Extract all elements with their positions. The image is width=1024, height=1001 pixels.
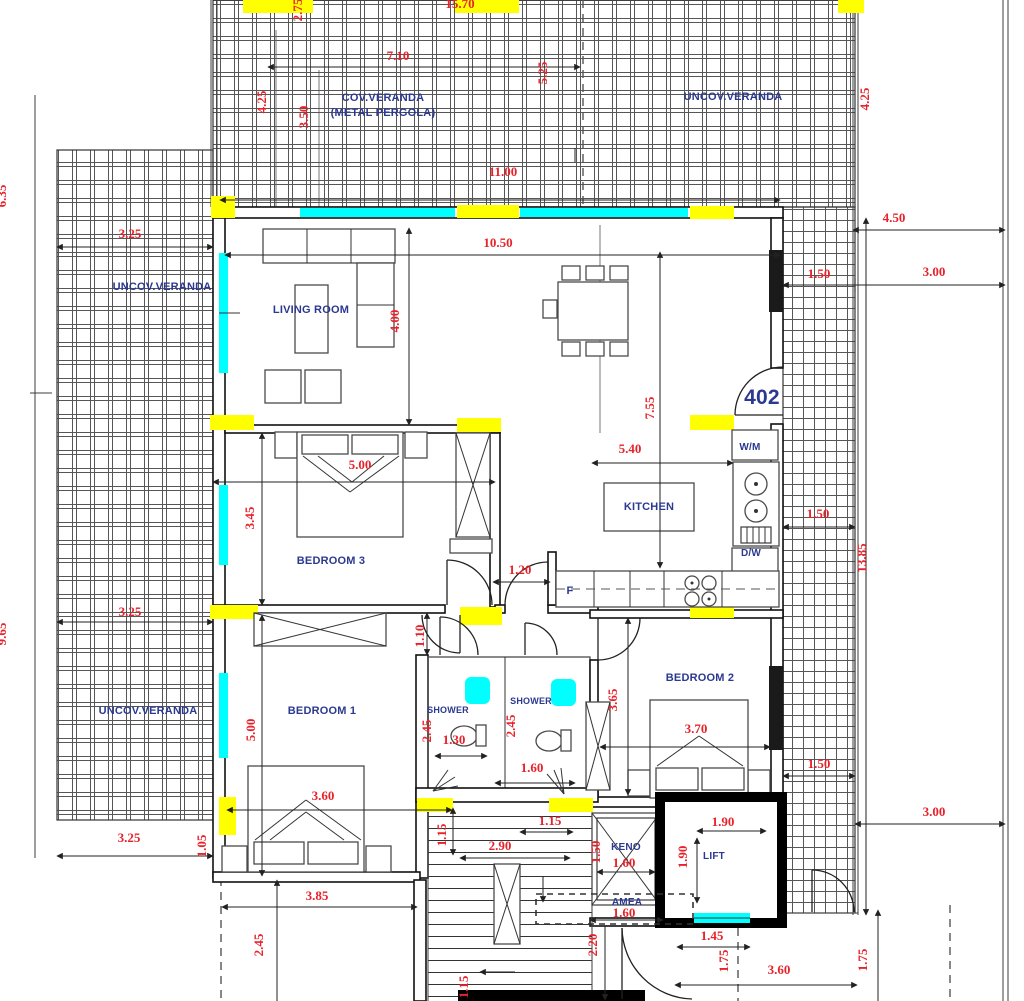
right-veranda-hatch (783, 207, 855, 913)
stair-bottom-wall (458, 990, 645, 1001)
room-label: UNCOV.VERANDA (113, 281, 212, 293)
dimension-label: 1.50 (807, 506, 830, 521)
dimension-label: 1.75 (716, 949, 731, 972)
bedroom1-door (422, 615, 460, 653)
coffee-table (295, 285, 328, 353)
living-window-frame (769, 250, 783, 312)
bedroom3-wardrobe (450, 433, 492, 553)
dimension-label: 4.25 (857, 87, 872, 110)
room-label: LIFT (703, 851, 725, 862)
room-label: 402 (744, 386, 780, 409)
bedroom3-hall-wall (490, 433, 500, 607)
dimension-label: 3.60 (768, 962, 791, 977)
dining-table (558, 282, 628, 340)
dimension-label: 11.00 (489, 164, 518, 179)
bedroom1-bed (222, 766, 391, 872)
dimension-label: 5.25 (535, 61, 550, 84)
dimension-label: 1.90 (712, 814, 735, 829)
room-label: BEDROOM 2 (666, 672, 734, 684)
dimension-label: 5.40 (619, 441, 642, 456)
floor-plan-drawing: 15.702.757.104.253.505.2511.004.254.503.… (0, 0, 1024, 1001)
dimension-label: 4.00 (387, 310, 402, 333)
room-label: SHOWER (427, 705, 469, 715)
dimension-label: 1.50 (808, 266, 831, 281)
dimension-label: 2.45 (503, 714, 518, 737)
bedroom2-door (598, 618, 640, 660)
dimension-label: 1.20 (509, 562, 532, 577)
dimension-label: 1.30 (443, 732, 466, 747)
room-label: KITCHEN (624, 501, 674, 513)
dimension-label: 3.60 (312, 788, 335, 803)
dining-table-set (543, 266, 628, 356)
kitchen-stub-wall (548, 552, 556, 605)
room-label: (METAL PERGOLA) (331, 107, 436, 119)
bedroom1-corridor-wall (416, 655, 428, 878)
dimension-label: 1.50 (588, 841, 603, 864)
basin (551, 679, 576, 706)
dimension-label: 5.00 (243, 719, 258, 742)
dimension-label: 15.70 (445, 0, 474, 11)
dimension-label: 1.05 (194, 834, 209, 857)
room-label: ΑΜΕΑ (612, 897, 642, 908)
dimension-label: 13.85 (854, 543, 869, 573)
room-label: BEDROOM 1 (288, 705, 356, 717)
room-label: SHOWER (510, 696, 552, 706)
dimension-label: 10.50 (483, 235, 512, 250)
dimension-label: 4.25 (254, 90, 269, 113)
armchair (265, 370, 301, 403)
dimension-label: 1.10 (412, 625, 427, 648)
stair-left-wall (414, 880, 426, 1001)
dimension-label: 3.25 (119, 604, 142, 619)
dimension-label: 3.25 (119, 226, 142, 241)
dimension-label: 1.60 (521, 760, 544, 775)
toilet (536, 731, 562, 751)
bedroom1-bottom-wall (213, 872, 420, 882)
dimension-label: 9.65 (0, 622, 9, 645)
dimension-label: 2.45 (419, 719, 434, 742)
room-label: D/W (741, 548, 761, 559)
bedroom1-wardrobe (254, 613, 386, 646)
top-veranda-hatch (213, 0, 855, 207)
room-label: BEDROOM 3 (297, 555, 365, 567)
dimension-label: 3.00 (923, 804, 946, 819)
dimension-label: 3.45 (242, 506, 257, 529)
bedroom2-wardrobe (586, 702, 610, 790)
dimension-label: 5.00 (349, 457, 372, 472)
dimension-label: 3.00 (923, 264, 946, 279)
dimension-label: 3.85 (306, 888, 329, 903)
dimension-label: 2.20 (585, 934, 600, 957)
basin (465, 677, 490, 704)
dimension-label: 2.90 (489, 838, 512, 853)
room-label: W/M (739, 442, 760, 453)
dimension-label: 3.65 (605, 688, 620, 711)
floor-plan-page: 15.702.757.104.253.505.2511.004.254.503.… (0, 0, 1024, 1001)
dimension-label: 3.50 (296, 106, 311, 129)
core-landing-door (622, 928, 692, 999)
armchair (305, 370, 341, 403)
dimension-label: 1.45 (701, 928, 724, 943)
dimension-label: 4.50 (883, 210, 906, 225)
kitchen-units (556, 430, 779, 607)
bedroom2-top-wall (590, 610, 783, 618)
dimension-label: 3.70 (685, 721, 708, 736)
dimension-label: 2.45 (251, 933, 266, 956)
dimension-label: 1.50 (808, 756, 831, 771)
dimension-label: 1.15 (539, 813, 562, 828)
shower2-door (525, 623, 557, 655)
room-label: LIVING ROOM (273, 304, 349, 316)
dimension-label: 1.15 (456, 975, 471, 998)
bedroom3-door (447, 560, 492, 605)
room-label: UNCOV.VERANDA (684, 91, 783, 103)
dimension-label: 1.15 (434, 823, 449, 846)
dimension-label: 1.90 (675, 846, 690, 869)
room-label: COV.VERANDA (342, 92, 424, 104)
left-veranda-hatch (57, 150, 213, 820)
dimension-label: 3.25 (118, 830, 141, 845)
bedroom2-bed (628, 700, 770, 798)
dimension-label: 7.55 (642, 396, 657, 419)
bedroom2-window-frame (769, 666, 783, 750)
room-label: UNCOV.VERANDA (99, 705, 198, 717)
room-label: F (567, 585, 574, 597)
oven-tall-unit (733, 462, 779, 546)
dimension-label: 1.75 (855, 948, 870, 971)
dimension-label: 2.75 (290, 0, 305, 21)
dimension-label: 6.35 (0, 184, 9, 207)
dimension-label: 7.10 (387, 48, 410, 63)
bedroom3-bed (275, 432, 427, 537)
room-label: ΚΕΝΟ (611, 842, 641, 853)
dimension-label: 1.60 (613, 855, 636, 870)
